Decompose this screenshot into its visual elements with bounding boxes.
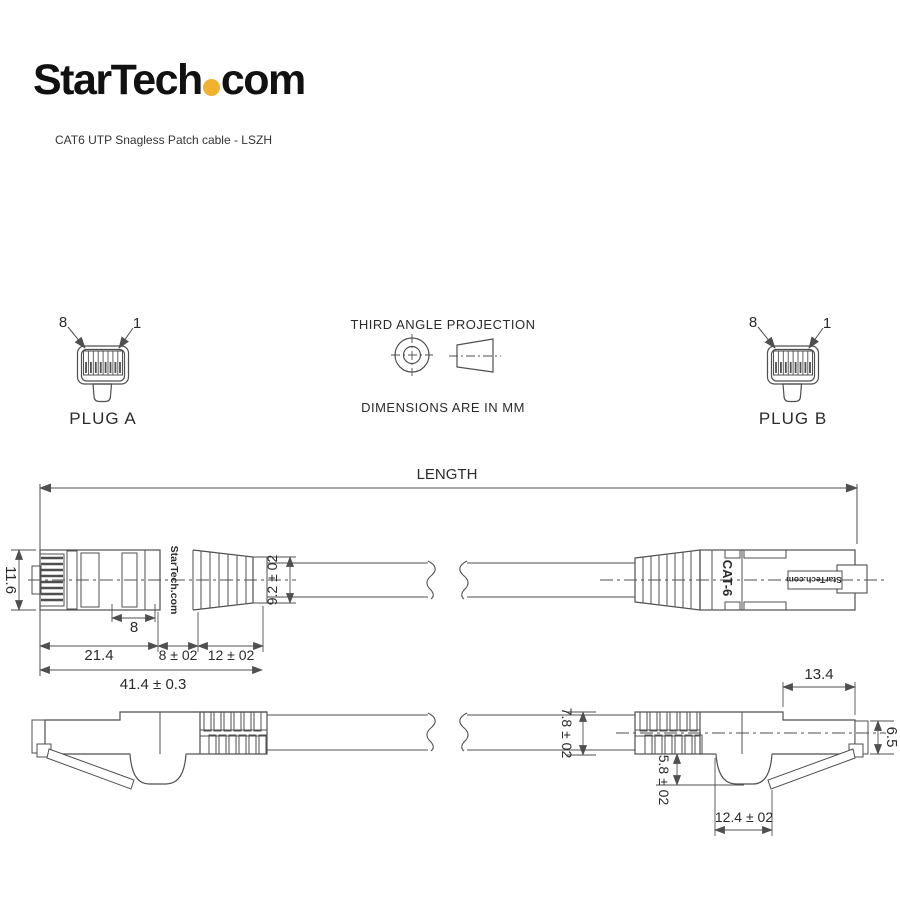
dim-latch-depth: 5.8 ± 02 bbox=[656, 755, 672, 806]
cable-break-icon bbox=[460, 713, 468, 751]
plug-b-pin1-label: 1 bbox=[823, 315, 831, 332]
side-view-left-connector bbox=[32, 712, 267, 789]
technical-drawing: 8 1 PLUG A 8 1 PLUG B bbox=[0, 0, 900, 900]
units-note: DIMENSIONS ARE IN MM bbox=[361, 400, 525, 415]
pin1-leader-line bbox=[119, 328, 133, 348]
right-connector-category-marking: CAT-6 bbox=[720, 560, 735, 597]
dim-body-length: 21.4 bbox=[84, 647, 113, 664]
plug-b-caption: PLUG B bbox=[759, 409, 827, 428]
drawing-page: StarTechcom CAT6 UTP Snagless Patch cabl… bbox=[0, 0, 900, 900]
plug-b-pin8-label: 8 bbox=[749, 314, 757, 331]
third-angle-projection-icon bbox=[391, 334, 501, 376]
plug-a-front-view bbox=[68, 327, 133, 402]
latch-lever bbox=[47, 749, 134, 789]
dim-window-width: 8 bbox=[130, 619, 138, 636]
cable-break-icon bbox=[427, 713, 435, 751]
dim-mid-length: 8 ± 02 bbox=[159, 647, 198, 663]
dim-boot-length: 12 ± 02 bbox=[208, 647, 255, 663]
plug-b-front-view bbox=[758, 327, 823, 402]
cable-break-icon bbox=[427, 561, 435, 599]
dim-plug-height: 11.6 bbox=[2, 566, 19, 594]
right-connector-brand-marking: StarTech.com bbox=[786, 575, 842, 585]
plug-a-pin8-label: 8 bbox=[59, 314, 67, 331]
plug-a-pin1-label: 1 bbox=[133, 315, 141, 332]
plug-a-caption: PLUG A bbox=[69, 409, 136, 428]
side-view-cable bbox=[267, 713, 635, 751]
cable-break-icon bbox=[460, 561, 468, 599]
left-connector-brand-marking: StarTech.com bbox=[168, 546, 180, 615]
dim-front-length: 13.4 bbox=[804, 666, 833, 683]
pin1-leader-line bbox=[809, 328, 823, 348]
dim-boot-height: 9.2 ± 02 bbox=[264, 555, 280, 606]
dim-front-height: 6.5 bbox=[883, 727, 900, 748]
latch-lever bbox=[768, 749, 855, 789]
projection-title: THIRD ANGLE PROJECTION bbox=[350, 317, 535, 332]
pin8-leader-line bbox=[68, 327, 85, 348]
top-view-cable bbox=[267, 561, 635, 599]
dim-hood-width: 12.4 ± 02 bbox=[715, 809, 773, 825]
pin8-leader-line bbox=[758, 327, 775, 348]
length-label: LENGTH bbox=[417, 466, 478, 483]
top-view-left-connector bbox=[28, 550, 296, 610]
dim-overall-length: 41.4 ± 0.3 bbox=[120, 676, 187, 693]
dim-cable-od: 7.8 ± 02 bbox=[559, 708, 575, 759]
